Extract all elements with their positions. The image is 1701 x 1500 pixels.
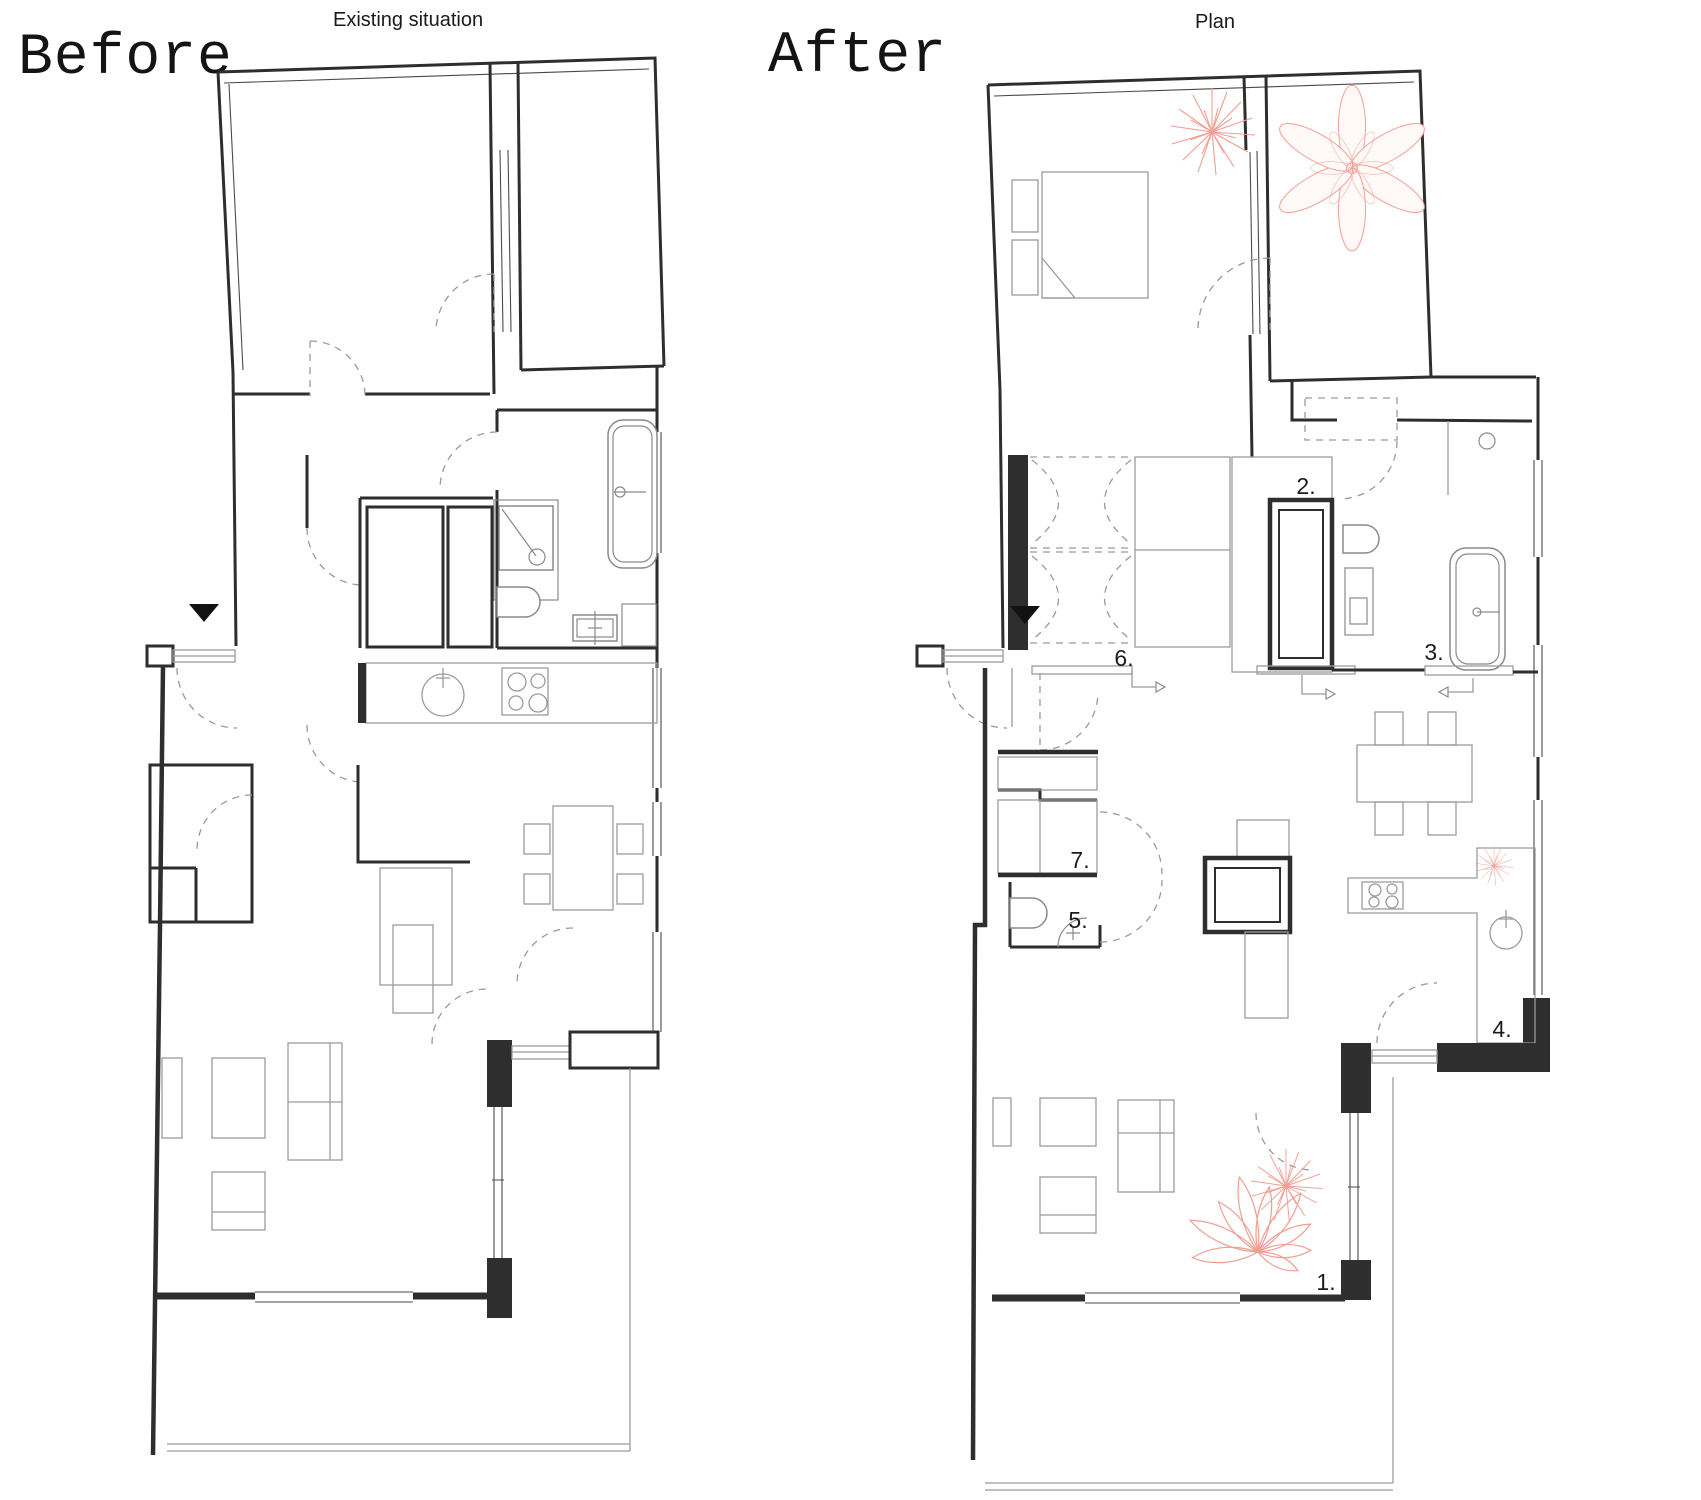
sideboard: [393, 925, 433, 1013]
before-closets: [150, 498, 493, 985]
toilet: [1343, 525, 1379, 553]
after-plan: 1. 2. 3. 4. 5. 6. 7.: [917, 71, 1550, 1490]
side-table: [993, 1098, 1011, 1146]
plant-starburst: [1171, 88, 1255, 175]
cupboard: [380, 868, 452, 985]
before-dining: [393, 806, 643, 1013]
flower-drawing: [1274, 85, 1431, 251]
toilet: [1010, 898, 1047, 928]
after-bathroom: [1292, 381, 1538, 697]
floorplan-canvas: Before After Existing situation Plan: [0, 0, 1701, 1500]
chair: [524, 824, 550, 854]
plant-starburst: [1251, 1149, 1322, 1223]
after-balcony-bay: [992, 983, 1550, 1303]
bathtub: [1450, 548, 1505, 670]
plant-small: [1476, 846, 1514, 885]
chair: [1428, 802, 1456, 835]
after-bedroom: [1012, 88, 1255, 298]
annotation-4: 4.: [1492, 1016, 1511, 1042]
ottoman: [1040, 1177, 1096, 1233]
slide-arrow-icon: [1326, 689, 1335, 699]
section-marker-icon: [189, 604, 219, 622]
chair: [617, 824, 643, 854]
annotation-5: 5.: [1068, 907, 1087, 933]
wardrobe: [367, 507, 443, 647]
before-balcony-bay: [155, 928, 661, 1318]
after-sofa-set: [993, 1098, 1323, 1276]
chair: [524, 874, 550, 904]
slide-arrow-icon: [1439, 687, 1448, 697]
nightstand: [1012, 240, 1038, 295]
annotation-6: 6.: [1114, 645, 1133, 671]
armchair: [212, 1058, 265, 1138]
annotation-3: 3.: [1424, 639, 1443, 665]
after-garden-room: [1274, 85, 1431, 251]
after-kitchen: [1348, 846, 1535, 1043]
before-kitchen: [358, 663, 657, 723]
bed: [1042, 172, 1148, 298]
side-table: [162, 1058, 182, 1138]
before-terrace: [167, 1068, 630, 1451]
chair: [617, 874, 643, 904]
annotation-7: 7.: [1070, 847, 1089, 873]
before-walls: [218, 58, 664, 932]
floorplans-svg: 1. 2. 3. 4. 5. 6. 7.: [0, 0, 1701, 1500]
before-sofa-set: [162, 1043, 342, 1230]
kitchen-counter: [366, 663, 657, 723]
before-bathroom: [440, 410, 657, 648]
kitchen-counter: [1348, 848, 1535, 1043]
chair: [1375, 802, 1403, 835]
wardrobe: [448, 507, 492, 647]
after-entrance: [917, 606, 1098, 1460]
dining-table: [553, 806, 613, 910]
chair: [1375, 712, 1403, 745]
toilet: [497, 587, 540, 617]
storage-room: [150, 765, 252, 922]
armchair: [1040, 1098, 1096, 1146]
after-dining: [1357, 712, 1472, 835]
bathroom-cabinet: [1345, 568, 1373, 635]
before-plan: [147, 58, 664, 1455]
tv-island: [1205, 858, 1290, 932]
after-media-unit: [1205, 820, 1290, 1018]
sofa: [1118, 1100, 1174, 1192]
annotation-2: 2.: [1296, 473, 1315, 499]
nightstand: [1012, 180, 1038, 232]
slide-arrow-icon: [1156, 682, 1165, 692]
boiler-unit: [622, 604, 656, 646]
before-entrance: [147, 604, 237, 1455]
annotation-1: 1.: [1316, 1269, 1335, 1295]
chair: [1428, 712, 1456, 745]
closet: [998, 757, 1097, 790]
ottoman: [212, 1172, 265, 1230]
dining-table: [1357, 745, 1472, 802]
